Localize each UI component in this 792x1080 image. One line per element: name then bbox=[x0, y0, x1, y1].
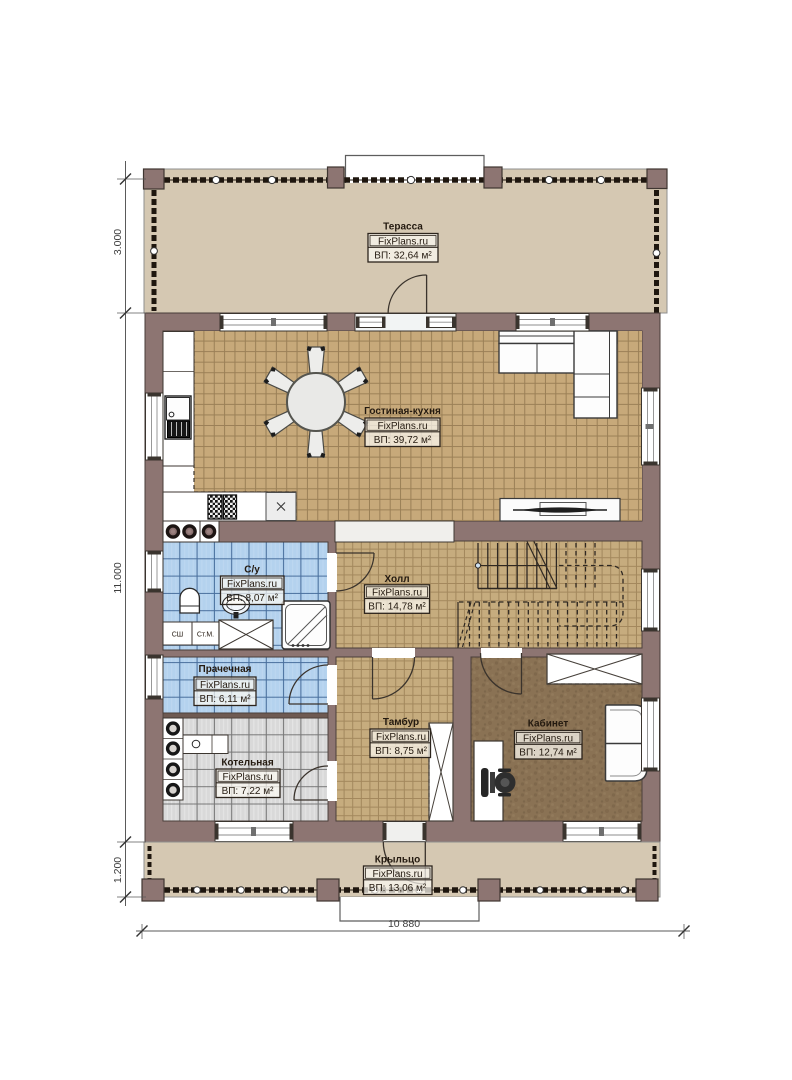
svg-text:С/у: С/у bbox=[244, 565, 260, 576]
svg-text:3.000: 3.000 bbox=[112, 229, 124, 255]
svg-text:Прачечная: Прачечная bbox=[199, 664, 252, 675]
svg-text:Тамбур: Тамбур bbox=[383, 716, 419, 728]
svg-text:ВП: 8,75 м²: ВП: 8,75 м² bbox=[375, 746, 428, 757]
svg-text:Гостиная-кухня: Гостиная-кухня bbox=[364, 406, 441, 417]
svg-text:ВП: 12,74 м²: ВП: 12,74 м² bbox=[519, 747, 577, 758]
svg-text:FixPlans.ru: FixPlans.ru bbox=[376, 732, 426, 743]
svg-text:ВП: 7,22 м²: ВП: 7,22 м² bbox=[222, 786, 275, 797]
svg-text:Холл: Холл bbox=[384, 574, 409, 585]
svg-text:Ст.М.: Ст.М. bbox=[197, 632, 214, 639]
svg-text:ВП: 14,78 м²: ВП: 14,78 м² bbox=[368, 602, 426, 613]
svg-text:Котельная: Котельная bbox=[221, 758, 274, 769]
svg-text:Кабинет: Кабинет bbox=[528, 718, 569, 730]
svg-text:Терасса: Терасса bbox=[383, 222, 423, 233]
svg-text:СШ: СШ bbox=[172, 632, 183, 639]
svg-text:FixPlans.ru: FixPlans.ru bbox=[372, 869, 422, 880]
svg-text:FixPlans.ru: FixPlans.ru bbox=[222, 772, 272, 783]
svg-text:FixPlans.ru: FixPlans.ru bbox=[372, 588, 422, 599]
svg-text:10 880: 10 880 bbox=[388, 918, 420, 930]
svg-text:Крыльцо: Крыльцо bbox=[375, 855, 421, 866]
svg-text:1.200: 1.200 bbox=[112, 857, 124, 883]
svg-text:ВП: 39,72 м²: ВП: 39,72 м² bbox=[374, 435, 432, 446]
svg-text:FixPlans.ru: FixPlans.ru bbox=[523, 733, 573, 744]
svg-text:ВП: 6,11 м²: ВП: 6,11 м² bbox=[199, 694, 251, 705]
svg-text:ВП: 13,06 м²: ВП: 13,06 м² bbox=[369, 883, 427, 894]
svg-text:FixPlans.ru: FixPlans.ru bbox=[378, 236, 428, 247]
svg-text:FixPlans.ru: FixPlans.ru bbox=[377, 421, 427, 432]
svg-text:FixPlans.ru: FixPlans.ru bbox=[200, 680, 250, 691]
svg-text:FixPlans.ru: FixPlans.ru bbox=[227, 579, 277, 590]
svg-text:ВП: 32,64 м²: ВП: 32,64 м² bbox=[374, 250, 432, 261]
svg-text:11.000: 11.000 bbox=[112, 562, 124, 593]
